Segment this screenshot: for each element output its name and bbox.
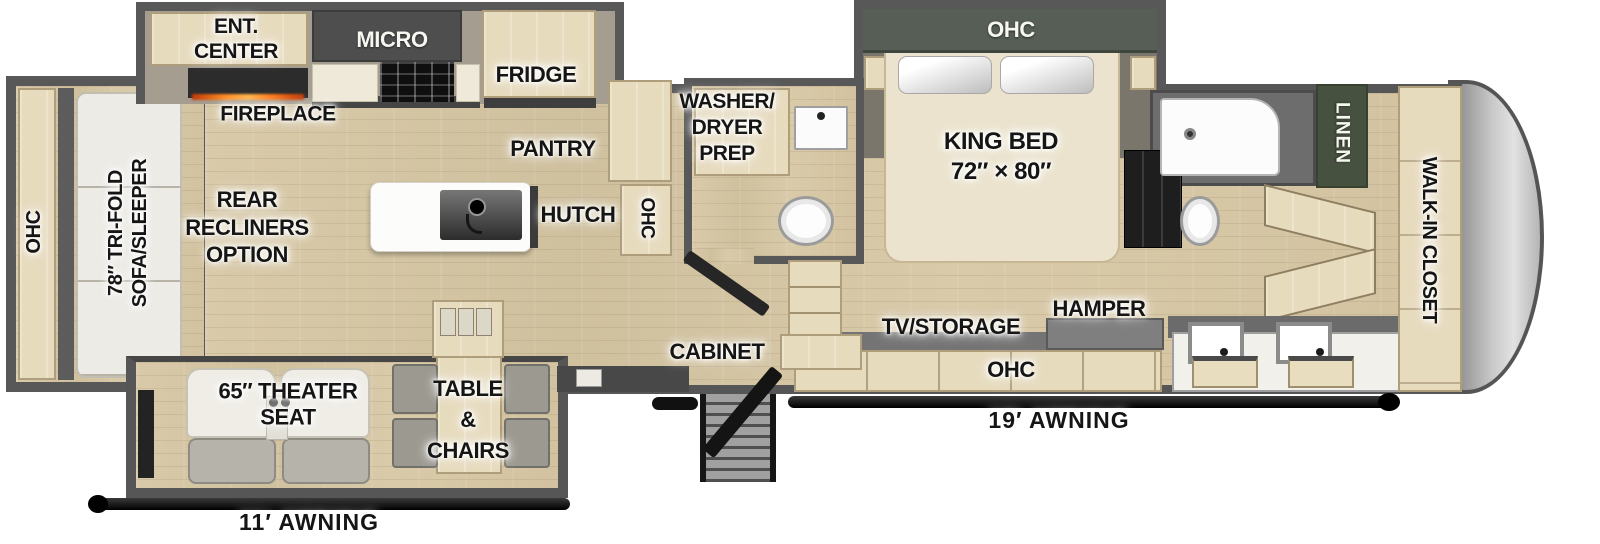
label-line: CHAIRS	[427, 435, 509, 466]
bed-pillow-left	[898, 56, 992, 94]
fireplace-flame	[192, 94, 304, 100]
entry-counter-box	[576, 369, 602, 387]
label-pantry: PANTRY	[510, 136, 596, 162]
theater-cushion-right	[282, 438, 370, 484]
awning-19ft-tube	[788, 396, 1392, 408]
label-line: TABLE	[427, 374, 509, 405]
label-line: KING BED	[944, 127, 1058, 157]
label-line: DRYER	[679, 115, 774, 141]
cooktop	[380, 62, 454, 102]
shower-tray	[1160, 98, 1280, 176]
label-sofa: 78″ TRI-FOLD SOFA/SLEEPER	[104, 159, 152, 308]
hutch-glass-pane-1	[440, 308, 456, 336]
label-tv-storage: TV/STORAGE	[882, 314, 1021, 340]
kitchen-counter-left	[312, 64, 378, 102]
toilet	[778, 196, 834, 246]
bed-pillow-right	[1000, 56, 1094, 94]
hutch-glass-pane-3	[476, 308, 492, 336]
label-theater-seat: 65″ THEATER SEAT	[219, 379, 358, 432]
label-king-bed: KING BED 72″ × 80″	[944, 127, 1058, 187]
bedroom-steps	[788, 260, 842, 338]
label-line: ENT.	[194, 14, 278, 39]
label-rear-ohc: OHC	[22, 210, 46, 253]
label-awning-19ft: 19′ AWNING	[988, 407, 1129, 435]
label-bedroom-ohc: OHC	[987, 17, 1035, 43]
kitchen-counter-right	[456, 64, 480, 102]
label-line: OPTION	[185, 241, 309, 269]
awning-19ft-endcap	[1378, 393, 1400, 411]
hutch-glass-pane-2	[458, 308, 474, 336]
shower-drain	[1184, 128, 1196, 140]
dinette-chair-3	[504, 364, 550, 414]
theater-cushion-left	[188, 438, 276, 484]
cabinet-box	[780, 334, 862, 370]
front-toilet	[1180, 196, 1220, 246]
label-walk-in-closet: WALK-IN CLOSET	[1417, 157, 1441, 324]
label-line: PREP	[679, 141, 774, 167]
label-line: 72″ × 80″	[944, 157, 1058, 187]
label-hamper: HAMPER	[1053, 296, 1146, 322]
label-hutch: HUTCH	[541, 202, 616, 228]
label-line: WASHER/	[679, 89, 774, 115]
slideout-window	[138, 390, 154, 478]
vanity-faucet-right	[1316, 348, 1324, 356]
vanity-faucet-left	[1220, 348, 1228, 356]
island-edge	[530, 186, 538, 248]
front-cap	[1448, 80, 1544, 394]
hamper-box	[1046, 318, 1164, 350]
sofa-back-shelf	[58, 88, 74, 380]
label-micro: MICRO	[356, 27, 427, 53]
label-linen: LINEN	[1330, 102, 1353, 164]
nightstand-left	[864, 56, 886, 90]
rv-floorplan-canvas: ENT. CENTER MICRO FRIDGE FIREPLACE PANTR…	[0, 0, 1600, 544]
label-fridge: FRIDGE	[496, 62, 577, 88]
grab-handle	[652, 397, 698, 410]
awning-11ft-tube	[96, 498, 570, 510]
pantry-cabinet	[608, 80, 672, 182]
dinette-chair-4	[504, 418, 550, 468]
label-awning-11ft: 11′ AWNING	[239, 509, 379, 537]
label-line: SEAT	[219, 405, 358, 431]
vanity-sink-right	[1288, 356, 1354, 388]
label-line: 65″ THEATER	[219, 379, 358, 405]
label-line: CENTER	[194, 39, 278, 64]
label-cabinet: CABINET	[670, 339, 765, 365]
vanity-sink-left	[1192, 356, 1258, 388]
label-dresser-ohc: OHC	[987, 357, 1035, 383]
label-hutch-ohc: OHC	[635, 197, 658, 238]
label-line: RECLINERS	[185, 213, 309, 241]
label-line: REAR	[185, 186, 309, 214]
label-rear-recliners: REAR RECLINERS OPTION	[185, 186, 309, 269]
label-line: SOFA/SLEEPER	[128, 159, 152, 308]
awning-11ft-endcap	[88, 495, 108, 513]
label-line: &	[427, 405, 509, 436]
bath-sink-faucet	[817, 112, 825, 120]
label-line: 78″ TRI-FOLD	[104, 159, 128, 308]
label-table-chairs: TABLE & CHAIRS	[427, 374, 509, 466]
label-ent-center: ENT. CENTER	[194, 14, 278, 64]
nightstand-right	[1130, 56, 1156, 90]
label-washer-dryer-prep: WASHER/ DRYER PREP	[679, 89, 774, 167]
label-fireplace: FIREPLACE	[220, 101, 335, 126]
